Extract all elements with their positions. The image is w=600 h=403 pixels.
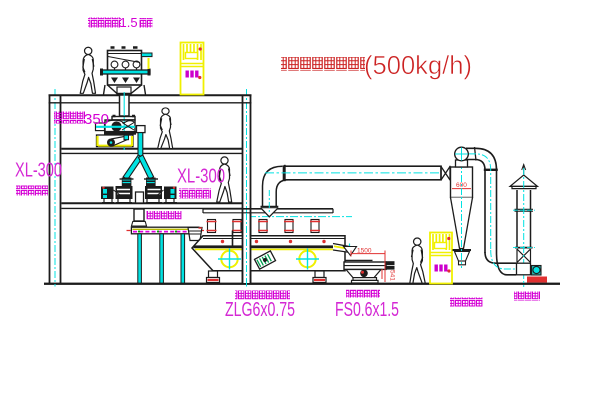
svg-text:XL-300: XL-300 — [177, 166, 225, 188]
svg-text:350: 350 — [84, 111, 109, 128]
svg-text:FS0.6x1.5: FS0.6x1.5 — [335, 299, 399, 321]
svg-text:1500: 1500 — [357, 248, 372, 255]
svg-text:(500kg/h): (500kg/h) — [364, 50, 472, 80]
svg-text:541: 541 — [389, 270, 396, 281]
svg-text:ZLG6x0.75: ZLG6x0.75 — [225, 299, 295, 321]
svg-text:XL-300: XL-300 — [15, 160, 62, 182]
svg-text:1.5: 1.5 — [120, 15, 138, 30]
